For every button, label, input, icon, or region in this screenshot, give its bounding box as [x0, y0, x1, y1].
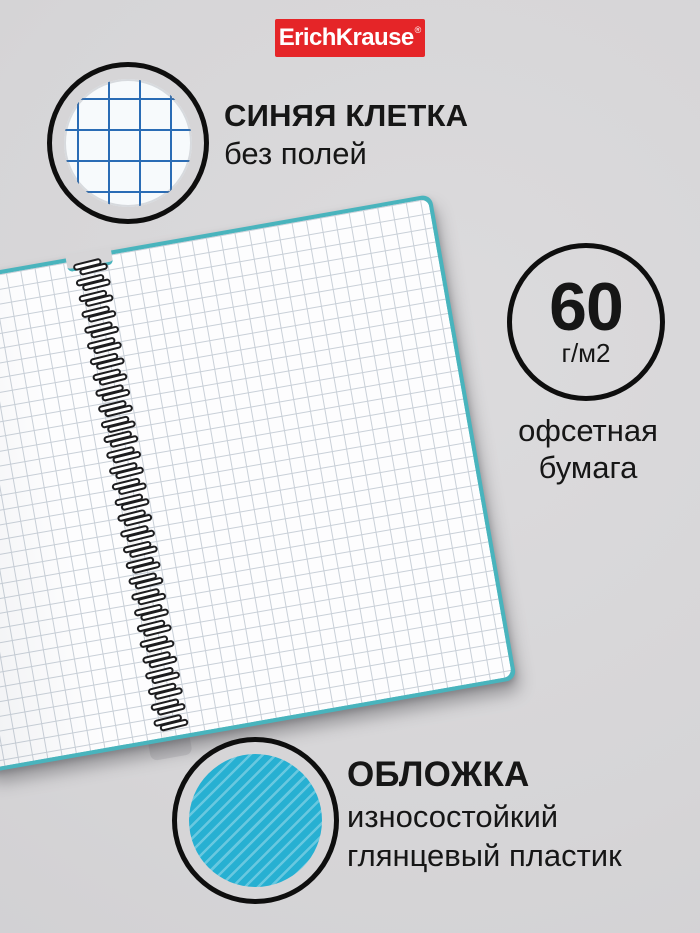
grid-feature-title: СИНЯЯ КЛЕТКА	[224, 97, 468, 135]
brand-logo: ErichKrause®	[275, 19, 425, 57]
paper-weight-badge: 60 г/м2	[507, 243, 665, 401]
notebook-photo	[0, 199, 512, 769]
grid-sample-circle	[47, 62, 209, 224]
paper-weight-value: 60	[549, 277, 623, 337]
product-image: ErichKrause® СИНЯЯ КЛЕТКА без полей 60 г…	[0, 0, 700, 933]
grid-feature-subtitle: без полей	[224, 135, 468, 173]
blue-grid-swatch	[64, 79, 192, 207]
cover-feature-line1: износостойкий	[347, 797, 622, 836]
registered-trademark-icon: ®	[415, 25, 422, 35]
cover-material-circle	[172, 737, 339, 904]
paper-type-line2: бумага	[478, 449, 698, 486]
cover-feature-caption: ОБЛОЖКА износостойкий глянцевый пластик	[347, 753, 622, 875]
grid-feature-caption: СИНЯЯ КЛЕТКА без полей	[224, 97, 468, 173]
paper-type-line1: офсетная	[478, 412, 698, 449]
cover-feature-title: ОБЛОЖКА	[347, 753, 622, 797]
paper-type-caption: офсетная бумага	[478, 412, 698, 486]
paper-weight-unit: г/м2	[561, 339, 610, 367]
brand-logo-text: ErichKrause	[279, 24, 414, 52]
cover-feature-line2: глянцевый пластик	[347, 836, 622, 875]
cover-material-swatch	[189, 754, 322, 887]
